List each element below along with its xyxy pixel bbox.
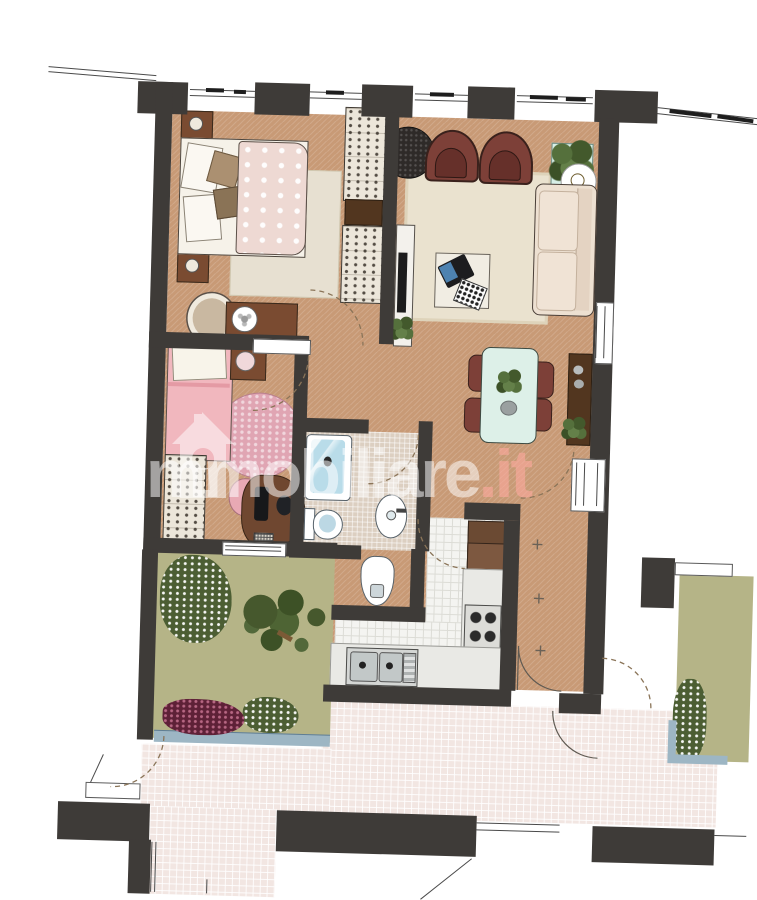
- floorplan: [0, 0, 757, 900]
- plan-linework: [0, 0, 757, 900]
- floorplan-image: immobiliare.it: [0, 0, 757, 900]
